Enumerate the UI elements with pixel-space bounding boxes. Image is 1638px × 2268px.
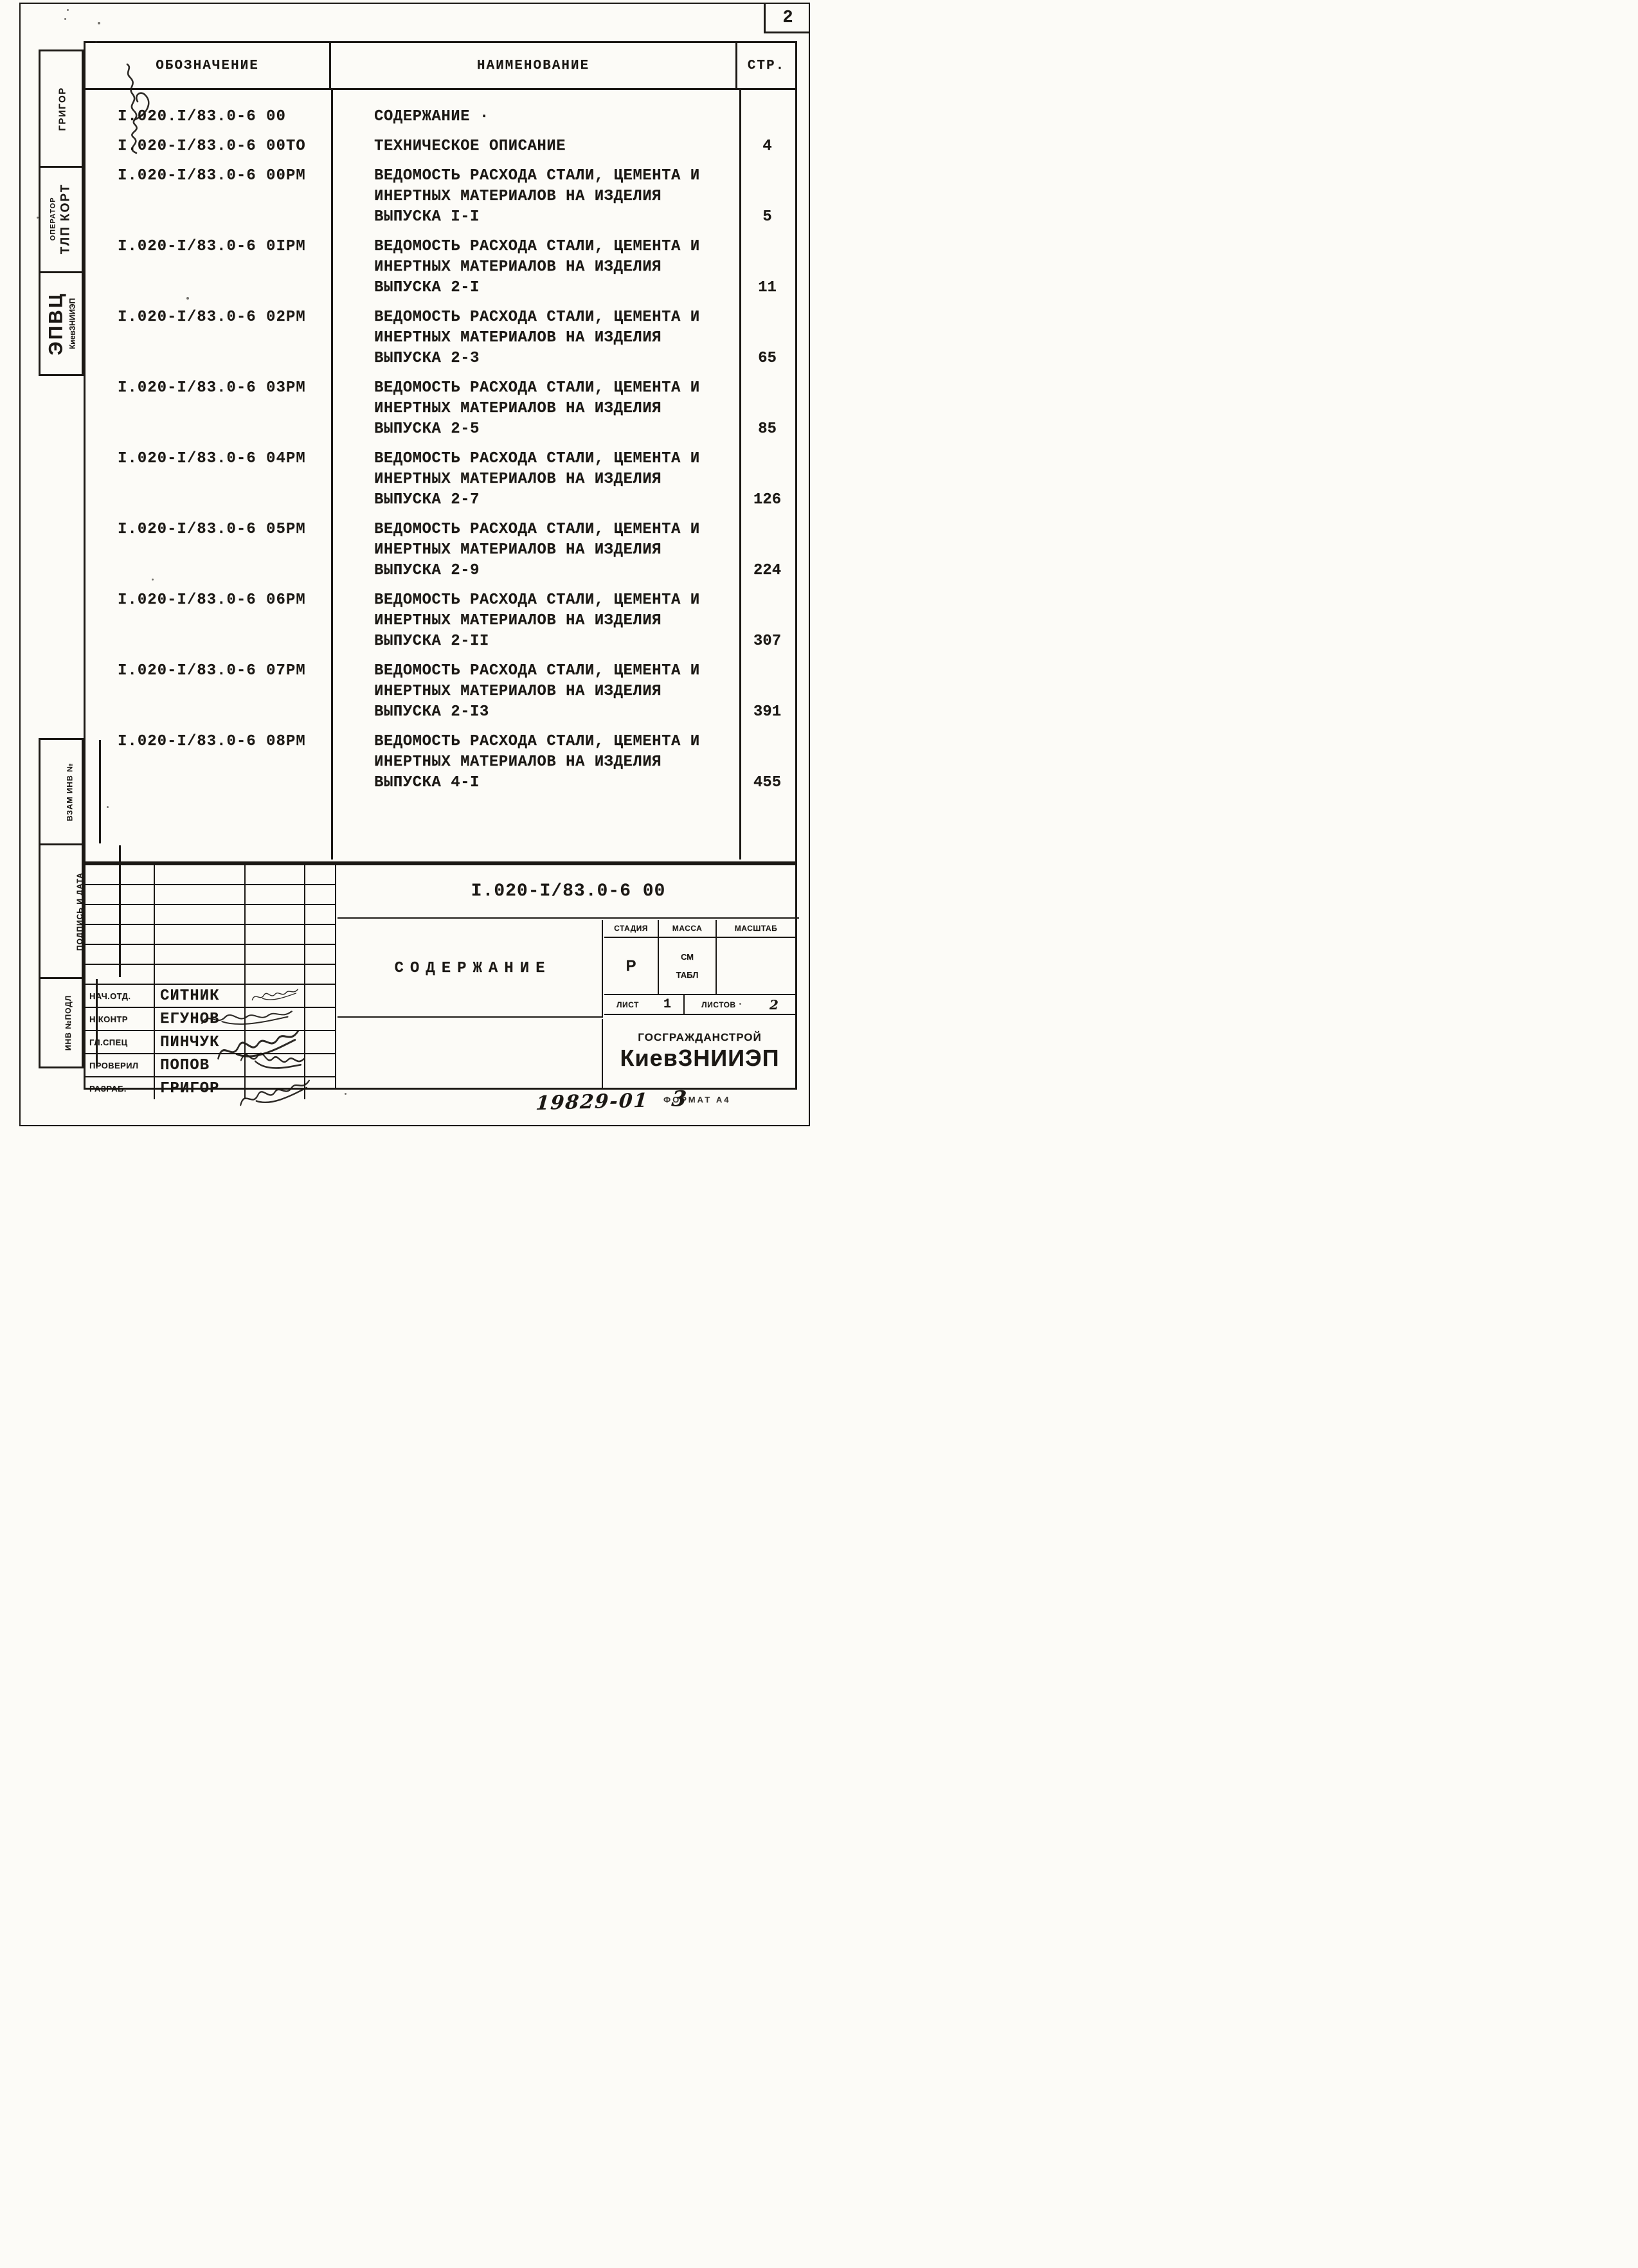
signature-cell xyxy=(246,1077,305,1099)
scan-speck xyxy=(107,806,109,808)
sheet-label: ЛИСТ xyxy=(616,1000,639,1009)
entry-designation: I.020-I/83.0-6 00РМ xyxy=(85,166,333,186)
mass-value: СМ ТАБЛ xyxy=(659,938,717,994)
entry-name: ВЕДОМОСТЬ РАСХОДА СТАЛИ, ЦЕМЕНТА И ИНЕРТ… xyxy=(333,661,739,723)
scan-speck xyxy=(152,579,154,580)
date-cell xyxy=(305,1031,335,1053)
sidebar-executor-stamp: ГРИГОР xyxy=(39,50,84,168)
entry-name: ВЕДОМОСТЬ РАСХОДА СТАЛИ, ЦЕМЕНТА И ИНЕРТ… xyxy=(333,590,739,652)
sidebar-inv-podl-stamp: ИНВ №ПОДЛ xyxy=(39,979,84,1068)
scan-speck xyxy=(739,1003,741,1005)
document-title: СОДЕРЖАНИЕ xyxy=(394,960,551,977)
signature-scribble xyxy=(248,984,302,1007)
stage-mass-scale-stamp: СТАДИЯ МАССА МАСШТАБ Р СМ ТАБЛ ЛИСТ 1 ЛИ… xyxy=(604,920,795,1088)
title-block: НАЧ.ОТД. СИТНИК Н.КОНТР ЕГУНОВ xyxy=(84,863,797,1090)
executor-name-cell: ГРИГОР xyxy=(40,51,85,166)
sheet-number-box: 2 xyxy=(764,4,810,33)
entry-page-number: 4 xyxy=(739,136,795,157)
sheet-number: 2 xyxy=(782,8,793,28)
toc-entry: I.020.I/83.0-6 00 СОДЕРЖАНИЕ · xyxy=(85,107,795,127)
entry-page-number: 5 xyxy=(739,207,795,228)
toc-entry: I.020-I/83.0-6 07РМ ВЕДОМОСТЬ РАСХОДА СТ… xyxy=(85,661,795,723)
signature-cell xyxy=(246,985,305,1007)
empty-revision-row xyxy=(85,865,335,885)
empty-revision-row xyxy=(85,965,335,985)
toc-entry: I.020-I/83.0-6 03РМ ВЕДОМОСТЬ РАСХОДА СТ… xyxy=(85,378,795,440)
document-number-cell: I.020-I/83.0-6 00 xyxy=(337,865,799,919)
signer-role: РАЗРАБ. xyxy=(85,1077,155,1099)
vzam-inv-label-cell: ВЗАМ ИНВ № xyxy=(40,740,101,843)
scan-speck xyxy=(67,9,69,11)
sidebar-vzam-inv-stamp: ВЗАМ ИНВ № xyxy=(39,738,84,845)
date-cell xyxy=(305,985,335,1007)
signer-name: СИТНИК xyxy=(155,985,246,1007)
podpis-data-label: ПОДПИСЬ И ДАТА xyxy=(75,872,84,950)
toc-entry: I.020-I/83.0-6 0IРМ ВЕДОМОСТЬ РАСХОДА СТ… xyxy=(85,237,795,298)
entry-designation: I.020-I/83.0-6 05РМ xyxy=(85,519,333,540)
entry-name: СОДЕРЖАНИЕ · xyxy=(333,107,739,127)
date-cell xyxy=(305,1008,335,1030)
stamp-values-row: Р СМ ТАБЛ xyxy=(604,938,795,995)
entry-name: ВЕДОМОСТЬ РАСХОДА СТАЛИ, ЦЕМЕНТА И ИНЕРТ… xyxy=(333,732,739,793)
sheets-value: 2 xyxy=(770,997,779,1013)
scan-speck xyxy=(345,1093,346,1095)
entry-page-number: 224 xyxy=(739,561,795,581)
column-divider xyxy=(739,90,741,860)
entry-designation: I.020-I/83.0-6 04РМ xyxy=(85,449,333,469)
entry-designation: I.020-I/83.0-6 07РМ xyxy=(85,661,333,681)
signer-row: РАЗРАБ. ГРИГОР xyxy=(85,1077,335,1099)
org-abbr: ЭПВЦ xyxy=(46,292,67,355)
signature-scribble xyxy=(120,60,148,157)
sheet-count-row: ЛИСТ 1 ЛИСТОВ 2 xyxy=(604,995,795,1015)
entry-name: ВЕДОМОСТЬ РАСХОДА СТАЛИ, ЦЕМЕНТА И ИНЕРТ… xyxy=(333,378,739,440)
contents-table: ОБОЗНАЧЕНИЕ НАИМЕНОВАНИЕ СТР. I.020.I/83… xyxy=(84,41,797,863)
entry-name: ВЕДОМОСТЬ РАСХОДА СТАЛИ, ЦЕМЕНТА И ИНЕРТ… xyxy=(333,449,739,510)
executor-signature-cell xyxy=(85,51,182,166)
signer-name: ГРИГОР xyxy=(155,1077,246,1099)
entry-name: ВЕДОМОСТЬ РАСХОДА СТАЛИ, ЦЕМЕНТА И ИНЕРТ… xyxy=(333,519,739,581)
stage-value: Р xyxy=(604,938,659,994)
podpis-data-label-cell: ПОДПИСЬ И ДАТА xyxy=(40,845,121,977)
document-title-cell: СОДЕРЖАНИЕ xyxy=(337,920,603,1018)
entry-page-number: 11 xyxy=(739,278,795,298)
empty-revision-row xyxy=(85,945,335,965)
entry-name: ВЕДОМОСТЬ РАСХОДА СТАЛИ, ЦЕМЕНТА И ИНЕРТ… xyxy=(333,166,739,228)
toc-entry: I.020-I/83.0-6 08РМ ВЕДОМОСТЬ РАСХОДА СТ… xyxy=(85,732,795,793)
entry-page-number: 126 xyxy=(739,490,795,510)
scan-speck xyxy=(186,297,189,300)
organization-cell: ГОСГРАЖДАНСТРОЙ КиевЗНИИЭП xyxy=(604,1015,795,1088)
entry-page-number: 85 xyxy=(739,419,795,440)
scale-value-empty xyxy=(717,938,795,994)
scale-label: МАСШТАБ xyxy=(717,920,795,937)
toc-entry: I.020-I/83.0-6 00ТО ТЕХНИЧЕСКОЕ ОПИСАНИЕ… xyxy=(85,136,795,157)
column-divider xyxy=(331,90,333,860)
empty-revision-row xyxy=(85,885,335,905)
contents-table-header: ОБОЗНАЧЕНИЕ НАИМЕНОВАНИЕ СТР. xyxy=(85,43,795,90)
format-label: ФОРМАТ А4 xyxy=(663,1095,730,1104)
org-name: КиевЗНИИЭП xyxy=(68,292,77,355)
title-block-signature-grid: НАЧ.ОТД. СИТНИК Н.КОНТР ЕГУНОВ xyxy=(85,865,336,1088)
inv-podl-label-cell: ИНВ №ПОДЛ xyxy=(40,979,98,1066)
stamp-header-row: СТАДИЯ МАССА МАСШТАБ xyxy=(604,920,795,938)
entry-page-number: 65 xyxy=(739,348,795,369)
toc-entry: I.020-I/83.0-6 02РМ ВЕДОМОСТЬ РАСХОДА СТ… xyxy=(85,307,795,369)
entry-designation: I.020-I/83.0-6 06РМ xyxy=(85,590,333,611)
scan-speck xyxy=(37,217,39,219)
organization-stamp-text: ЭПВЦ КиевЗНИИЭП xyxy=(46,292,77,355)
toc-entry: I.020-I/83.0-6 06РМ ВЕДОМОСТЬ РАСХОДА СТ… xyxy=(85,590,795,652)
entry-page-number: 391 xyxy=(739,702,795,723)
sheet-cell: ЛИСТ 1 xyxy=(604,995,685,1014)
column-header-page: СТР. xyxy=(737,43,795,88)
vzam-inv-label: ВЗАМ ИНВ № xyxy=(65,762,74,821)
signature-cell xyxy=(246,1054,305,1076)
stage-label: СТАДИЯ xyxy=(604,920,659,937)
entry-name: ВЕДОМОСТЬ РАСХОДА СТАЛИ, ЦЕМЕНТА И ИНЕРТ… xyxy=(333,307,739,369)
sidebar-podpis-data-stamp: ПОДПИСЬ И ДАТА xyxy=(39,845,84,979)
sidebar-operator-stamp: ОПЕРАТОР ТЛП КОРТ xyxy=(39,166,84,273)
organization-parent: ГОСГРАЖДАНСТРОЙ xyxy=(638,1031,762,1044)
entry-name: ВЕДОМОСТЬ РАСХОДА СТАЛИ, ЦЕМЕНТА И ИНЕРТ… xyxy=(333,237,739,298)
signer-rows: НАЧ.ОТД. СИТНИК Н.КОНТР ЕГУНОВ xyxy=(85,985,335,1099)
entry-page-number: 307 xyxy=(739,631,795,652)
scan-speck xyxy=(98,22,100,24)
mass-label: МАССА xyxy=(659,920,717,937)
signer-row: НАЧ.ОТД. СИТНИК xyxy=(85,985,335,1008)
sidebar-organization-stamp: ЭПВЦ КиевЗНИИЭП xyxy=(39,273,84,376)
entry-designation: I.020-I/83.0-6 08РМ xyxy=(85,732,333,752)
inv-podl-label: ИНВ №ПОДЛ xyxy=(64,995,73,1050)
toc-entry: I.020-I/83.0-6 00РМ ВЕДОМОСТЬ РАСХОДА СТ… xyxy=(85,166,795,228)
entry-designation: I.020-I/83.0-6 02РМ xyxy=(85,307,333,328)
contents-table-body: I.020.I/83.0-6 00 СОДЕРЖАНИЕ · I.020-I/8… xyxy=(85,90,795,860)
organization-name: КиевЗНИИЭП xyxy=(620,1045,779,1072)
toc-entry: I.020-I/83.0-6 04РМ ВЕДОМОСТЬ РАСХОДА СТ… xyxy=(85,449,795,510)
entry-page-number: 455 xyxy=(739,773,795,793)
sheet-value: 1 xyxy=(663,997,671,1012)
sheets-label: ЛИСТОВ xyxy=(701,1000,735,1009)
column-header-name: НАИМЕНОВАНИЕ xyxy=(331,43,737,88)
empty-revision-row xyxy=(85,925,335,945)
scan-speck xyxy=(64,18,66,20)
operator-value: ТЛП КОРТ xyxy=(59,183,73,254)
empty-cell xyxy=(337,1019,603,1088)
scan-speck xyxy=(95,41,97,43)
entry-name: ТЕХНИЧЕСКОЕ ОПИСАНИЕ xyxy=(333,136,739,157)
entry-designation: I.020-I/83.0-6 0IРМ xyxy=(85,237,333,257)
document-number: I.020-I/83.0-6 00 xyxy=(471,881,666,901)
operator-label: ОПЕРАТОР xyxy=(50,183,57,254)
operator-stamp-text: ОПЕРАТОР ТЛП КОРТ xyxy=(50,183,73,254)
scanned-drawing-sheet: 2 ОБОЗНАЧЕНИЕ НАИМЕНОВАНИЕ СТР. I.020.I/… xyxy=(0,0,819,1134)
toc-entry: I.020-I/83.0-6 05РМ ВЕДОМОСТЬ РАСХОДА СТ… xyxy=(85,519,795,581)
entry-designation: I.020-I/83.0-6 03РМ xyxy=(85,378,333,399)
empty-revision-row xyxy=(85,905,335,925)
executor-name: ГРИГОР xyxy=(57,87,68,130)
footer-doc-code: 19829-01 xyxy=(535,1090,649,1115)
